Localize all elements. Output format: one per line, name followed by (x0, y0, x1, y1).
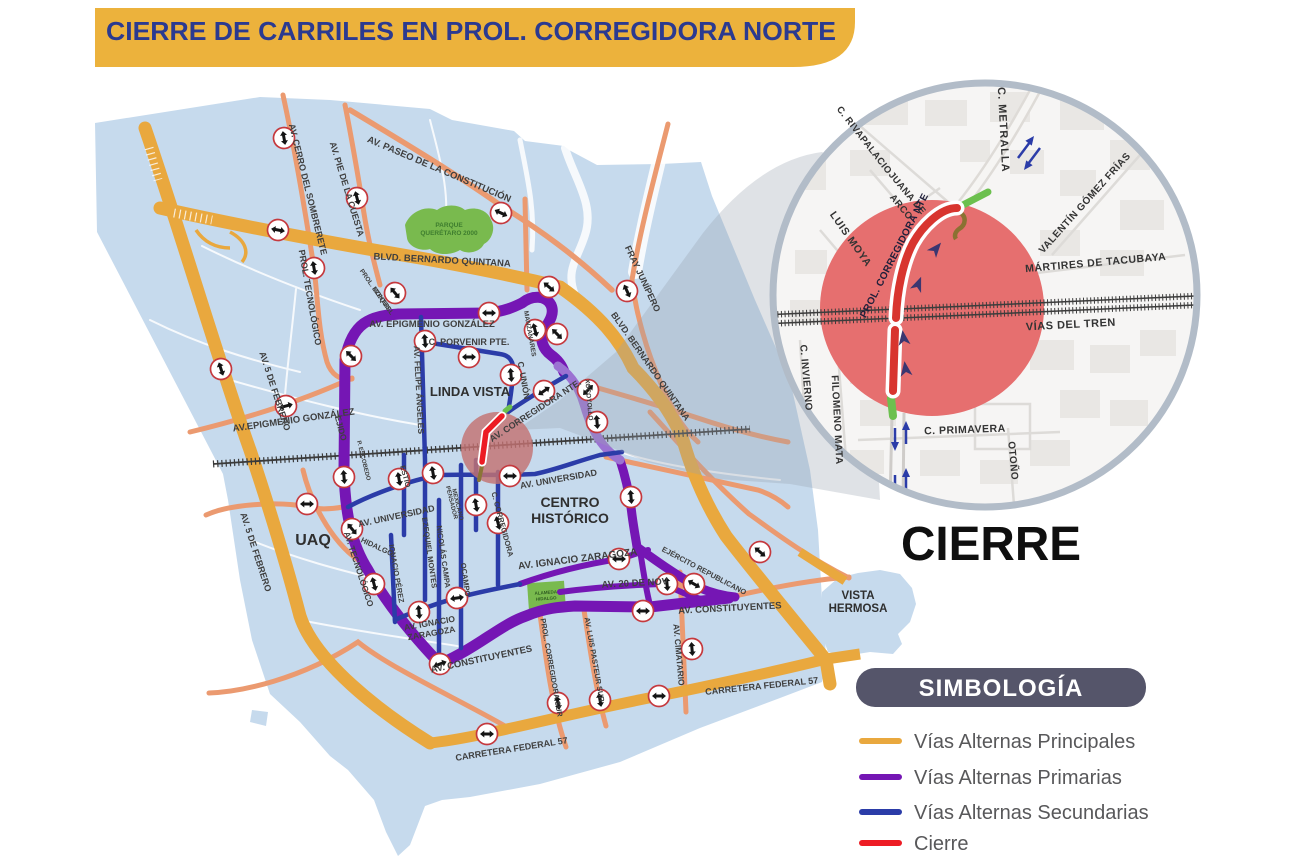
svg-text:PARQUE: PARQUE (435, 222, 463, 229)
svg-text:Vías Alternas Secundarias: Vías Alternas Secundarias (914, 802, 1149, 824)
svg-text:CENTRO: CENTRO (540, 494, 599, 510)
svg-text:CIERRE DE CARRILES EN PROL. CO: CIERRE DE CARRILES EN PROL. CORREGIDORA … (106, 16, 836, 46)
svg-text:Vías Alternas Primarias: Vías Alternas Primarias (914, 767, 1122, 789)
svg-text:HISTÓRICO: HISTÓRICO (531, 509, 609, 526)
svg-text:AV. EPIGMENIO GONZÁLEZ: AV. EPIGMENIO GONZÁLEZ (369, 319, 495, 330)
svg-text:QUERÉTARO 2000: QUERÉTARO 2000 (420, 228, 478, 237)
svg-text:SIMBOLOGÍA: SIMBOLOGÍA (919, 674, 1084, 702)
svg-text:UAQ: UAQ (295, 532, 331, 549)
svg-text:Vías Alternas Principales: Vías Alternas Principales (914, 731, 1135, 753)
svg-text:LINDA VISTA: LINDA VISTA (430, 384, 511, 399)
svg-text:VISTA: VISTA (841, 590, 874, 602)
svg-text:C. PORVENIR PTE.: C. PORVENIR PTE. (429, 337, 510, 347)
svg-text:HERMOSA: HERMOSA (829, 603, 888, 615)
svg-text:Cierre: Cierre (914, 833, 968, 855)
svg-text:CIERRE: CIERRE (901, 518, 1081, 571)
